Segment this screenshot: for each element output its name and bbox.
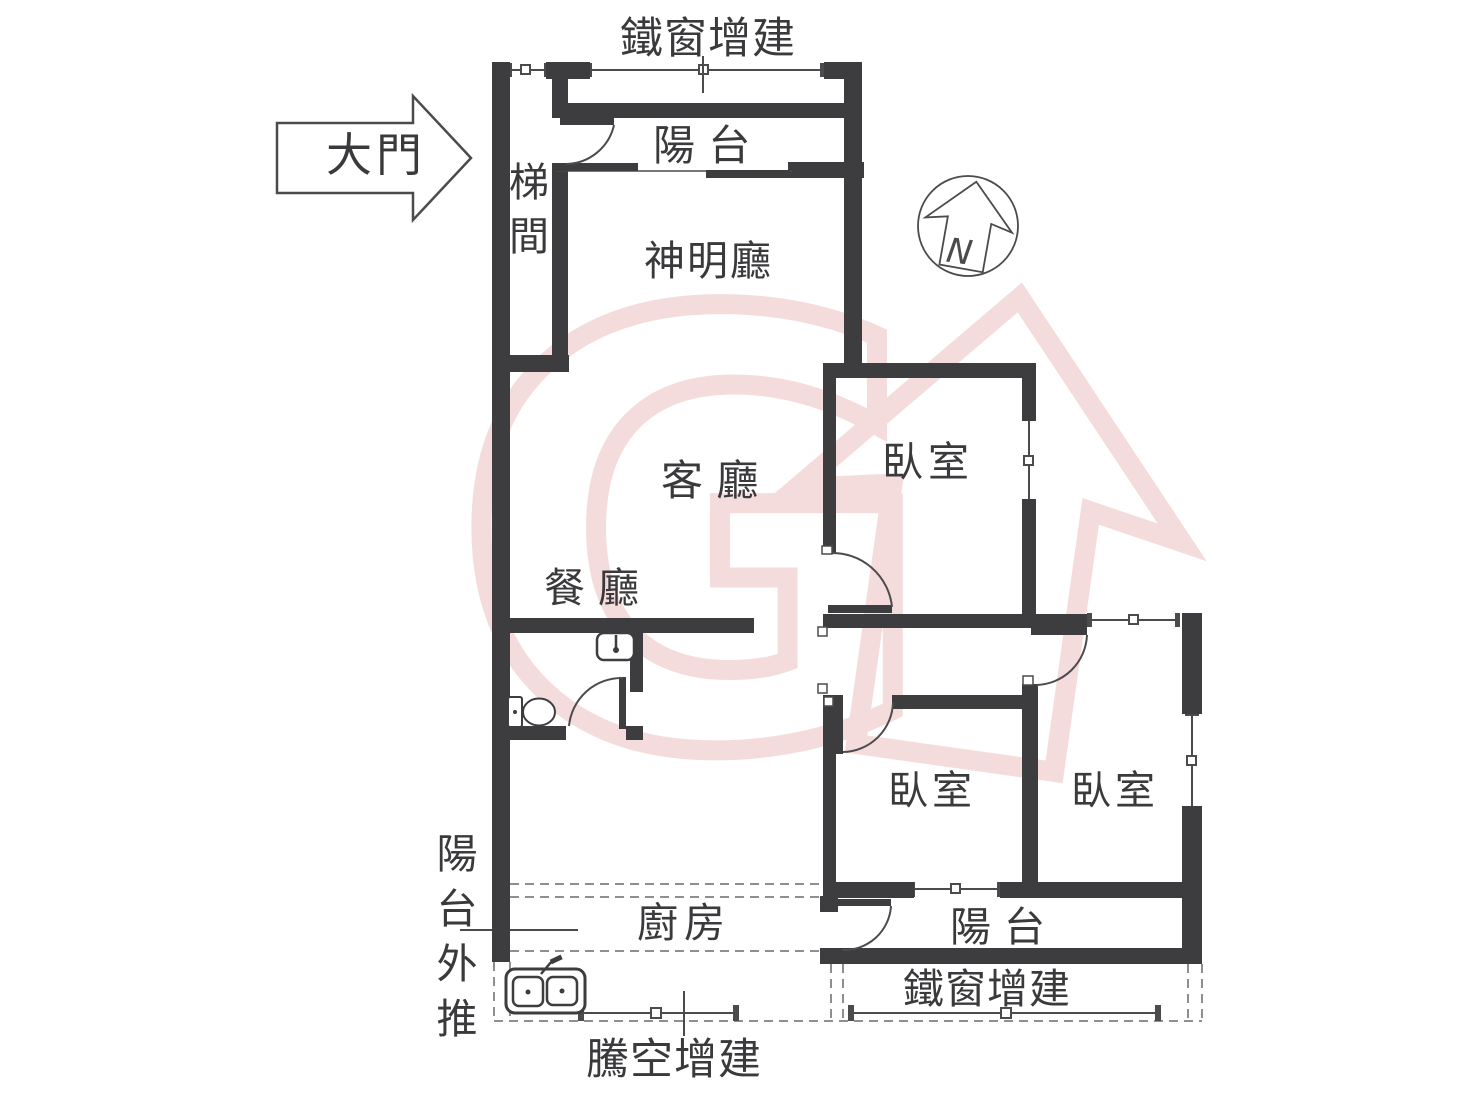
label-iron-window-bottom: 鐵窗增建 xyxy=(903,967,1071,1012)
wall-outer-east-upper xyxy=(1182,613,1202,714)
window-top-long xyxy=(587,63,825,77)
window-bedroom3-east xyxy=(1185,711,1199,811)
label-bedroom-3: 臥室 xyxy=(1071,769,1159,813)
wall-bedrooms-south-west xyxy=(823,882,914,898)
label-kitchen: 廚房 xyxy=(637,901,731,946)
label-living-room: 客 廳 xyxy=(661,458,758,504)
window-bedroom2-south xyxy=(910,882,1002,897)
label-main-entrance: 大門 xyxy=(326,130,426,181)
window-bedroom3-north xyxy=(1087,613,1180,627)
wall-bedroom1-west xyxy=(823,363,836,553)
bathroom-sink-icon xyxy=(597,633,634,660)
label-bedroom-2: 臥室 xyxy=(888,769,976,813)
window-bedroom1-east xyxy=(1022,416,1036,504)
svg-text:G: G xyxy=(452,195,936,882)
wall-dining-south xyxy=(500,618,754,633)
floor-plan: G xyxy=(0,0,1480,1110)
label-balcony-top: 陽 台 xyxy=(653,123,750,169)
label-shrine-hall: 神明廳 xyxy=(644,239,773,284)
label-balcony-pushout: 陽台外推 xyxy=(434,827,480,1047)
wall-bedroom2-west xyxy=(823,695,836,898)
window-kitchen-addition xyxy=(578,1005,739,1021)
label-bedroom-1: 臥室 xyxy=(882,440,974,485)
wall-balcony-top-north xyxy=(552,103,862,118)
wall-bedroom1-north xyxy=(823,363,1036,378)
door-balcony-bottom xyxy=(838,899,891,950)
wall-stairwell-east xyxy=(552,163,568,362)
door-entry xyxy=(560,118,614,164)
wall-bedroom2-north xyxy=(892,695,1038,709)
compass-icon: N xyxy=(918,174,1020,276)
wall-bedrooms-south-east xyxy=(1000,882,1196,898)
label-cantilever-addition: 騰空增建 xyxy=(586,1037,762,1084)
label-dining-room: 餐 廳 xyxy=(544,566,639,611)
label-stairwell: 梯間 xyxy=(506,156,552,264)
toilet-icon xyxy=(508,697,555,727)
wall-bedroom1-south xyxy=(823,614,1087,628)
label-balcony-bottom: 陽 台 xyxy=(950,905,1045,950)
window-top-small xyxy=(507,63,549,77)
wall-stairwell-south xyxy=(492,355,569,372)
label-iron-window-top: 鐵窗增建 xyxy=(620,16,796,63)
wall-bathroom-south xyxy=(500,726,566,740)
kitchen-sink-icon xyxy=(506,955,585,1013)
wall-bedroom3-west xyxy=(1022,684,1038,898)
